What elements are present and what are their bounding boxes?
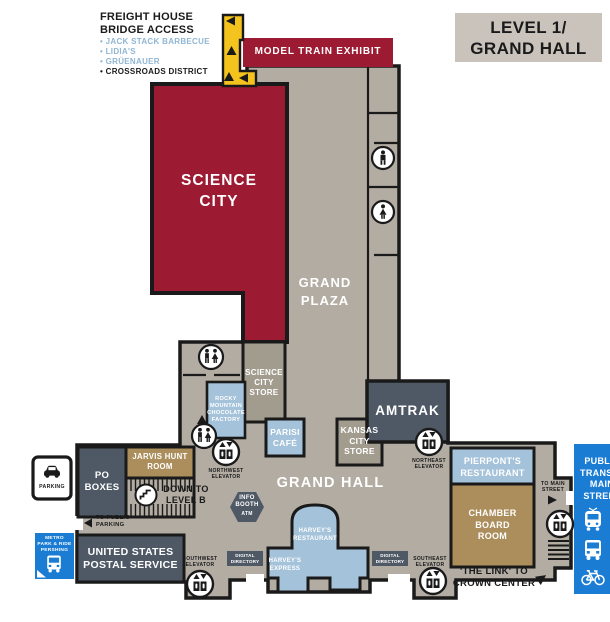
model-train-label: MODEL TRAIN EXHIBIT — [243, 46, 393, 58]
science-city-store-label: SCIENCE CITY STORE — [243, 368, 285, 398]
legend-item-gruenauer: • GRÜENAUER — [100, 57, 260, 66]
southeast-elevator-icon — [420, 568, 446, 594]
floor-plan-page: FREIGHT HOUSE BRIDGE ACCESS • JACK STACK… — [0, 0, 610, 622]
southwest-elevator-icon — [187, 571, 213, 597]
legend-title: FREIGHT HOUSE BRIDGE ACCESS — [100, 11, 250, 36]
grand-plaza-label: GRAND PLAZA — [277, 274, 373, 309]
info-booth-label: INFO BOOTH — [230, 495, 264, 509]
legend-item-lidias: • LIDIA'S — [100, 47, 260, 56]
mens-restroom-icon — [372, 147, 394, 169]
science-city-label: SCIENCE CITY — [160, 170, 278, 212]
legend-item-jack-stack: • JACK STACK BARBECUE — [100, 37, 260, 46]
room-science-city — [152, 84, 287, 342]
stairs-down-icon — [136, 485, 157, 506]
harveys-restaurant-label: HARVEY'S RESTAURANT — [292, 528, 338, 543]
parisi-cafe-label: PARISI CAFÉ — [266, 427, 304, 449]
public-transit-label: PUBLIC TRANSIT/ MAIN STREET — [574, 456, 610, 502]
northeast-elevator-icon — [416, 429, 442, 455]
grand-hall-label: GRAND HALL — [268, 475, 393, 492]
down-to-level-b-label: DOWN TO LEVEL B — [156, 484, 216, 505]
door-gap-south-right — [388, 574, 410, 586]
to-public-parking-label: TO PUBLIC PARKING — [96, 515, 148, 528]
chamber-board-label: CHAMBER BOARD ROOM — [451, 508, 534, 543]
main-street-elevator-icon — [547, 511, 573, 537]
amtrak-label: AMTRAK — [367, 403, 448, 419]
atm-label: ATM — [230, 512, 264, 518]
harveys-express-label: HARVEY'S EXPRESS — [262, 558, 308, 573]
restrooms-icon-lower — [192, 424, 216, 448]
usps-label: UNITED STATES POSTAL SERVICE — [77, 546, 184, 572]
kansas-city-store-label: KANSAS CITY STORE — [337, 425, 382, 457]
the-link-label: 'THE LINK' TO CROWN CENTER — [446, 566, 542, 590]
parking-badge — [33, 457, 71, 499]
sw-elevator-label: SOUTHWEST ELEVATOR — [178, 556, 222, 568]
legend-item-crossroads: • CROSSROADS DISTRICT — [100, 67, 260, 76]
restrooms-icon-upper — [199, 345, 223, 369]
metro-park-ride-label: METRO PARK & RIDE PERSHING — [35, 536, 74, 554]
nw-elevator-label: NORTHWEST ELEVATOR — [200, 468, 252, 480]
po-boxes-label: PO BOXES — [78, 470, 126, 494]
door-gap-south-left — [246, 574, 264, 586]
pierponts-label: PIERPONT'S RESTAURANT — [451, 456, 534, 479]
rocky-mountain-label: ROCKY MOUNTAIN CHOCOLATE FACTORY — [207, 396, 245, 424]
jarvis-hunt-label: JARVIS HUNT ROOM — [126, 452, 194, 472]
digital-directory-west: DIGITAL DIRECTORY — [227, 551, 263, 566]
level-title-badge: LEVEL 1/ GRAND HALL — [455, 13, 602, 62]
parking-label: PARKING — [33, 485, 71, 491]
ne-elevator-label: NORTHEAST ELEVATOR — [406, 458, 452, 470]
womens-restroom-icon — [372, 201, 394, 223]
northwest-elevator-icon — [213, 439, 239, 465]
to-main-street-label: TO MAIN STREET — [537, 481, 569, 493]
digital-directory-east: DIGITAL DIRECTORY — [372, 551, 408, 566]
se-elevator-label: SOUTHEAST ELEVATOR — [408, 556, 452, 568]
